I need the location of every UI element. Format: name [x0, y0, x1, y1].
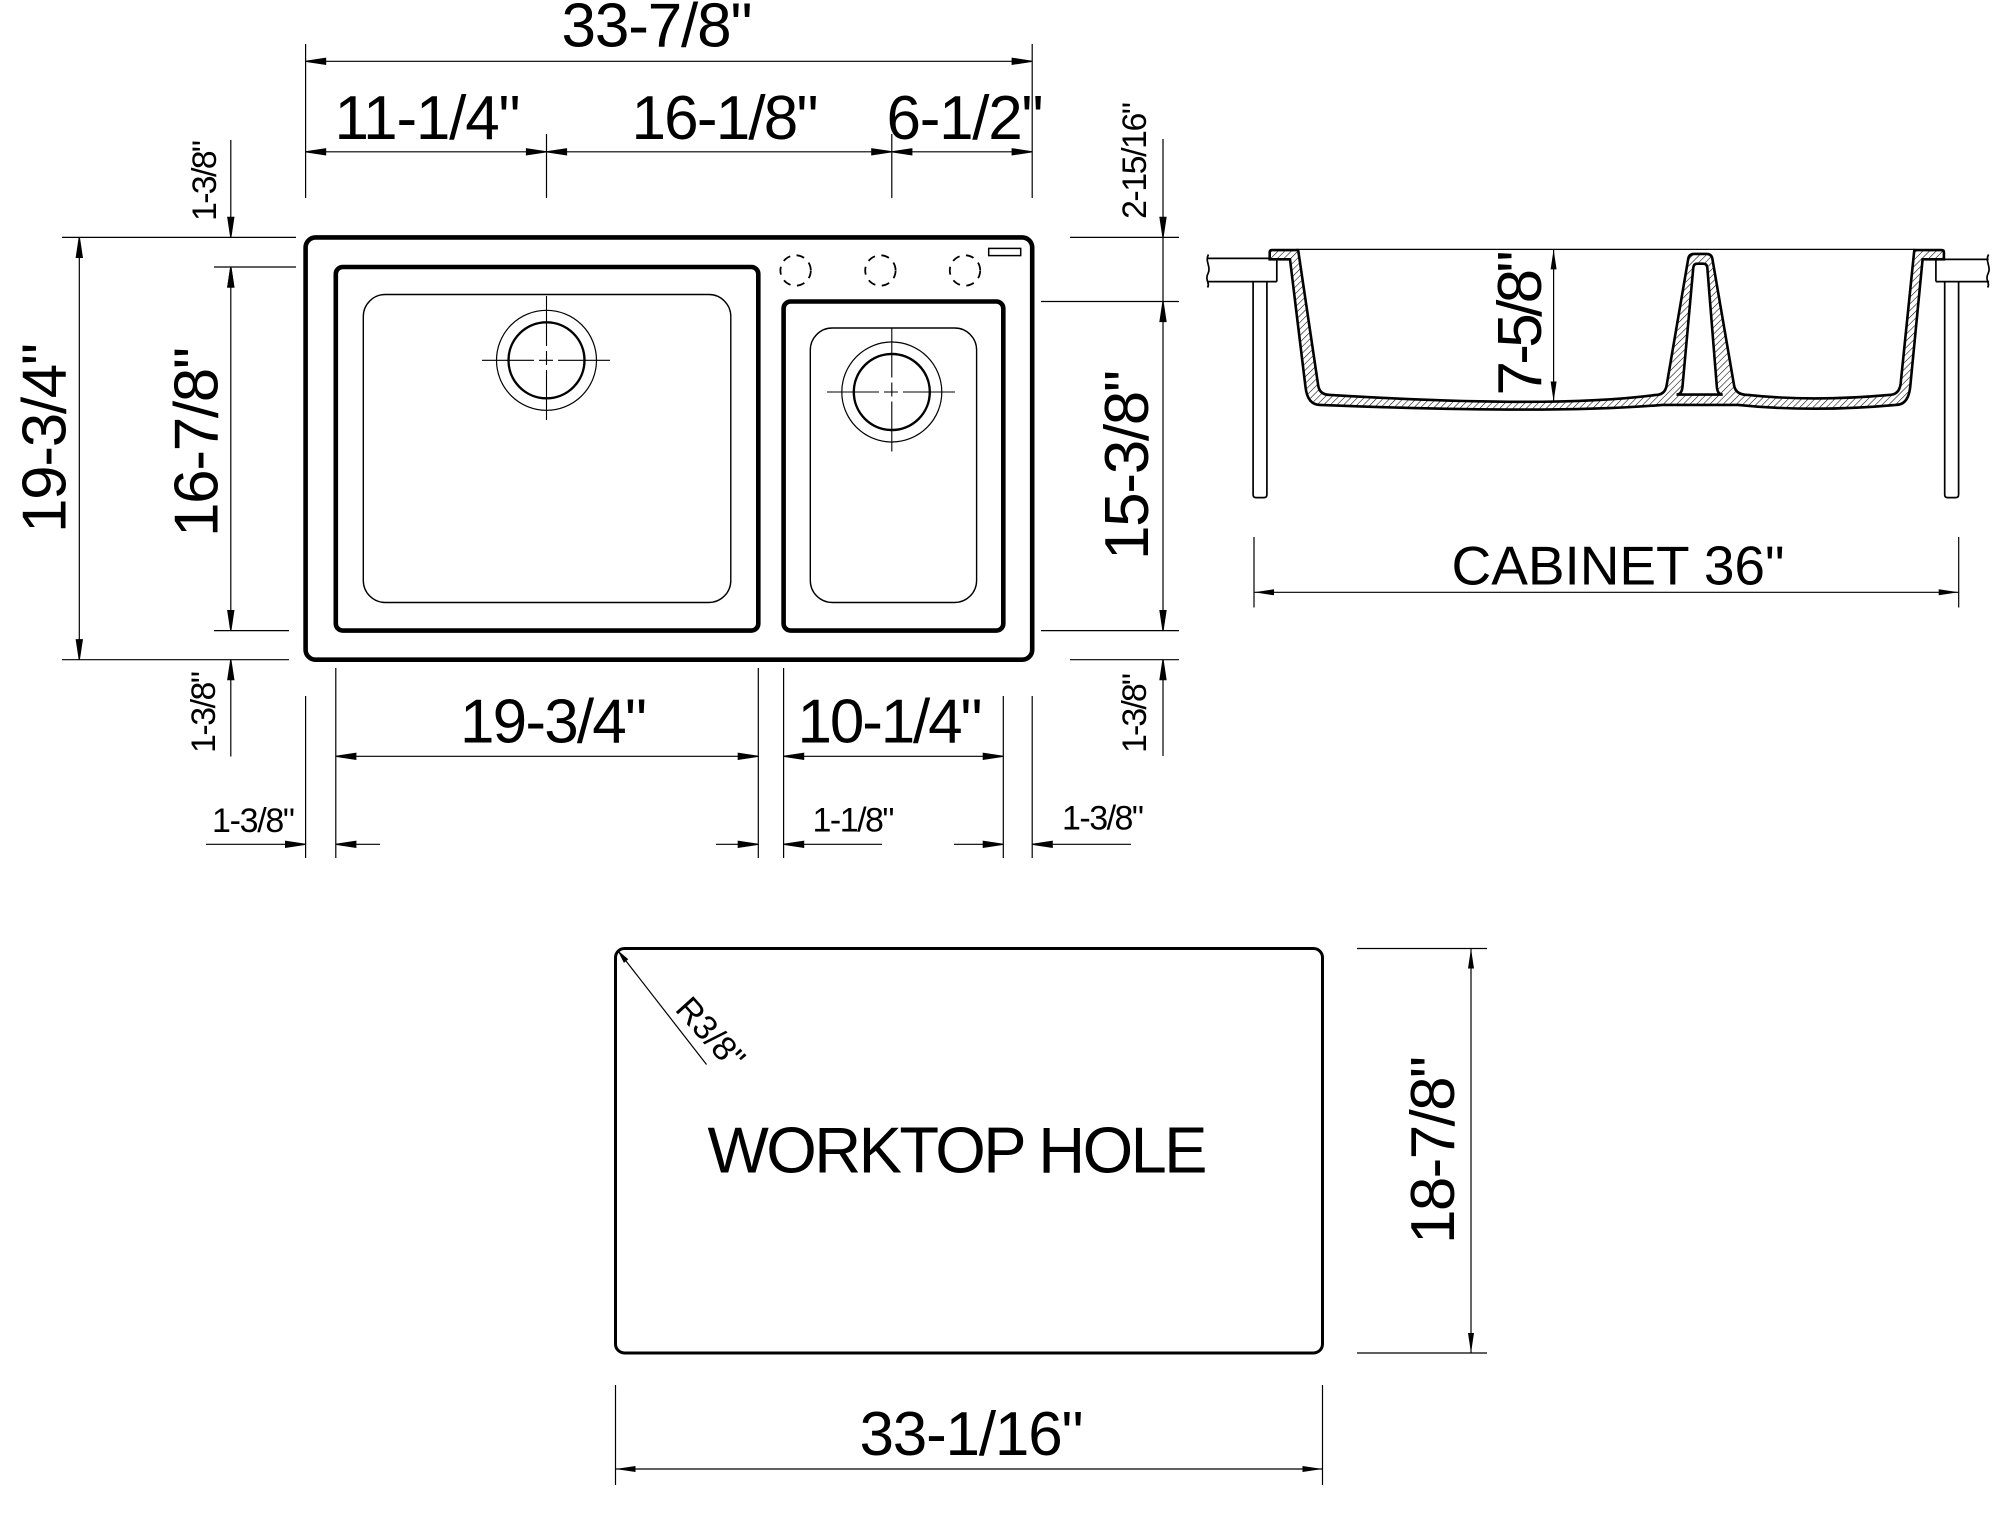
svg-text:18-7/8": 18-7/8": [1399, 1056, 1468, 1244]
svg-text:1-3/8": 1-3/8": [212, 802, 295, 840]
svg-text:33-1/16": 33-1/16": [860, 1400, 1084, 1469]
svg-text:2-15/16": 2-15/16": [1116, 102, 1154, 219]
svg-text:16-7/8": 16-7/8": [163, 347, 232, 537]
svg-text:1-3/8": 1-3/8": [1062, 800, 1144, 838]
svg-text:1-3/8": 1-3/8": [1116, 673, 1154, 753]
svg-text:19-3/4": 19-3/4": [460, 688, 647, 757]
svg-text:CABINET 36": CABINET 36": [1452, 535, 1785, 597]
svg-text:33-7/8": 33-7/8": [562, 0, 753, 61]
svg-text:16-1/8": 16-1/8": [632, 84, 819, 153]
svg-text:1-3/8": 1-3/8": [185, 671, 223, 753]
svg-text:1-1/8": 1-1/8": [813, 802, 895, 840]
svg-text:7-5/8": 7-5/8": [1486, 251, 1555, 396]
svg-text:1-3/8": 1-3/8": [186, 140, 224, 221]
svg-text:19-3/4": 19-3/4": [11, 343, 80, 533]
svg-text:6-1/2": 6-1/2": [887, 84, 1044, 153]
svg-text:WORKTOP HOLE: WORKTOP HOLE: [708, 1114, 1208, 1187]
svg-text:10-1/4": 10-1/4": [798, 688, 983, 757]
svg-text:11-1/4": 11-1/4": [335, 84, 521, 153]
svg-text:15-3/8": 15-3/8": [1093, 370, 1162, 560]
